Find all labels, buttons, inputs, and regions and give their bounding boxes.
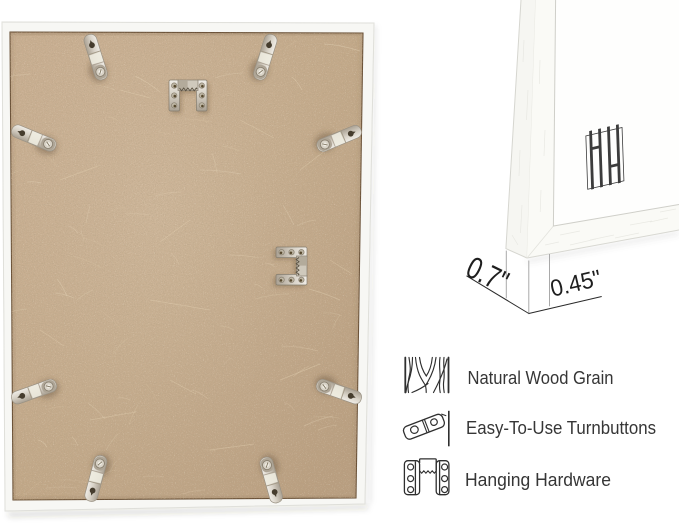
svg-text:Natural Wood Grain: Natural Wood Grain xyxy=(468,367,614,388)
svg-text:Easy-To-Use Turnbuttons: Easy-To-Use Turnbuttons xyxy=(466,417,656,438)
svg-text:Hanging Hardware: Hanging Hardware xyxy=(465,469,611,490)
